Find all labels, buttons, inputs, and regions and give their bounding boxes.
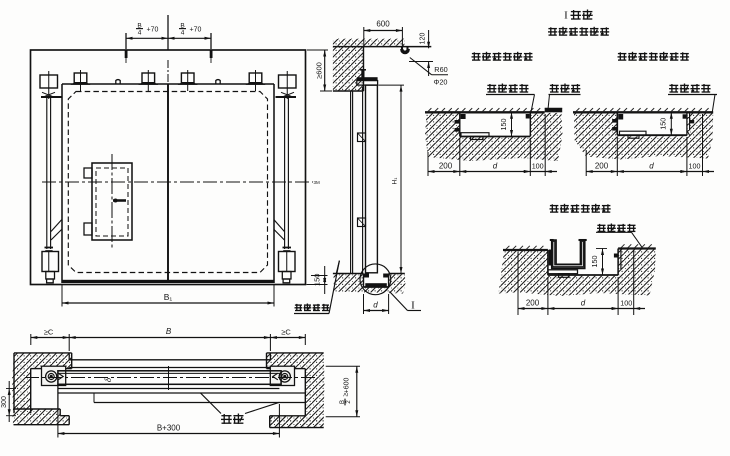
svg-text:B+300: B+300 (157, 423, 181, 432)
svg-text:I: I (411, 300, 415, 312)
svg-text:d: d (649, 161, 654, 170)
svg-text:200: 200 (595, 161, 609, 170)
svg-text:H₁: H₁ (392, 177, 399, 185)
svg-text:150: 150 (313, 274, 322, 287)
svg-text:≥C: ≥C (44, 327, 54, 336)
svg-text:150: 150 (590, 256, 599, 268)
svg-text:≥C: ≥C (281, 327, 291, 336)
svg-text:150: 150 (499, 119, 508, 131)
svg-text:I: I (564, 10, 568, 22)
svg-text:4: 4 (181, 29, 185, 36)
svg-text:B: B (166, 327, 172, 336)
svg-text:d: d (581, 298, 586, 307)
svg-text:Φ20: Φ20 (434, 77, 448, 86)
svg-text:R60: R60 (434, 65, 447, 74)
svg-text:100: 100 (689, 161, 701, 170)
svg-text:+600: +600 (344, 378, 351, 394)
svg-text:+70: +70 (190, 26, 202, 33)
svg-text:d: d (493, 161, 498, 170)
svg-text:≥: ≥ (343, 392, 350, 396)
svg-text:100: 100 (620, 298, 632, 307)
svg-text:300: 300 (1, 396, 8, 408)
svg-text:4: 4 (138, 29, 142, 36)
svg-text:150: 150 (659, 118, 668, 130)
svg-text:B₁: B₁ (164, 292, 173, 302)
svg-text:d: d (373, 301, 378, 310)
svg-text:200: 200 (439, 161, 453, 170)
svg-text:600: 600 (376, 20, 390, 29)
svg-text:≥600: ≥600 (315, 62, 324, 79)
svg-text:+70: +70 (147, 26, 159, 33)
svg-text:3M: 3M (314, 180, 321, 185)
svg-text:120: 120 (419, 33, 426, 45)
svg-text:200: 200 (526, 298, 540, 307)
svg-text:100: 100 (532, 161, 544, 170)
